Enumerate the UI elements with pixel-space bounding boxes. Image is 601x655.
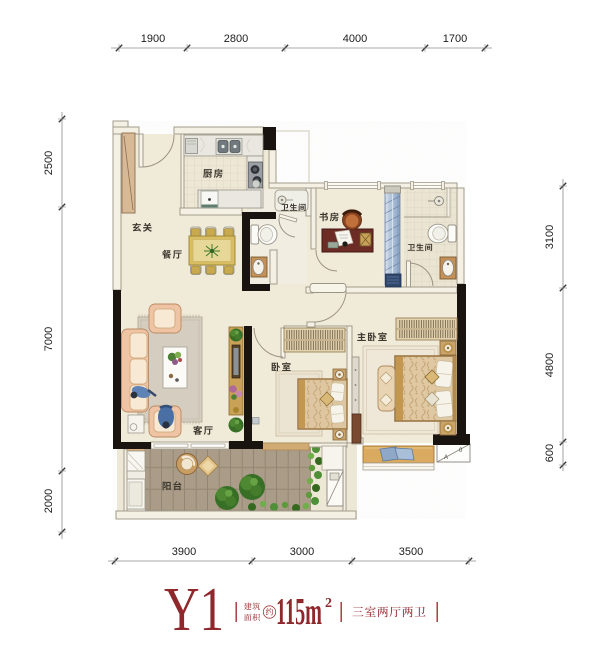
svg-text:600: 600 (544, 444, 556, 462)
svg-text:A: A (444, 455, 448, 461)
svg-text:1700: 1700 (443, 33, 467, 45)
svg-text:Y1: Y1 (164, 576, 224, 644)
svg-text:2: 2 (325, 596, 332, 611)
svg-text:2000: 2000 (43, 489, 55, 513)
svg-text:1900: 1900 (141, 33, 165, 45)
svg-text:2500: 2500 (43, 151, 55, 175)
svg-text:3900: 3900 (172, 546, 196, 558)
svg-text:115m: 115m (276, 591, 322, 633)
svg-text:4000: 4000 (343, 33, 367, 45)
svg-text:3500: 3500 (399, 546, 423, 558)
svg-text:2800: 2800 (224, 33, 248, 45)
svg-text:7000: 7000 (43, 327, 55, 351)
svg-text:4800: 4800 (544, 353, 556, 377)
svg-text:3000: 3000 (290, 546, 314, 558)
svg-text:3100: 3100 (544, 225, 556, 249)
